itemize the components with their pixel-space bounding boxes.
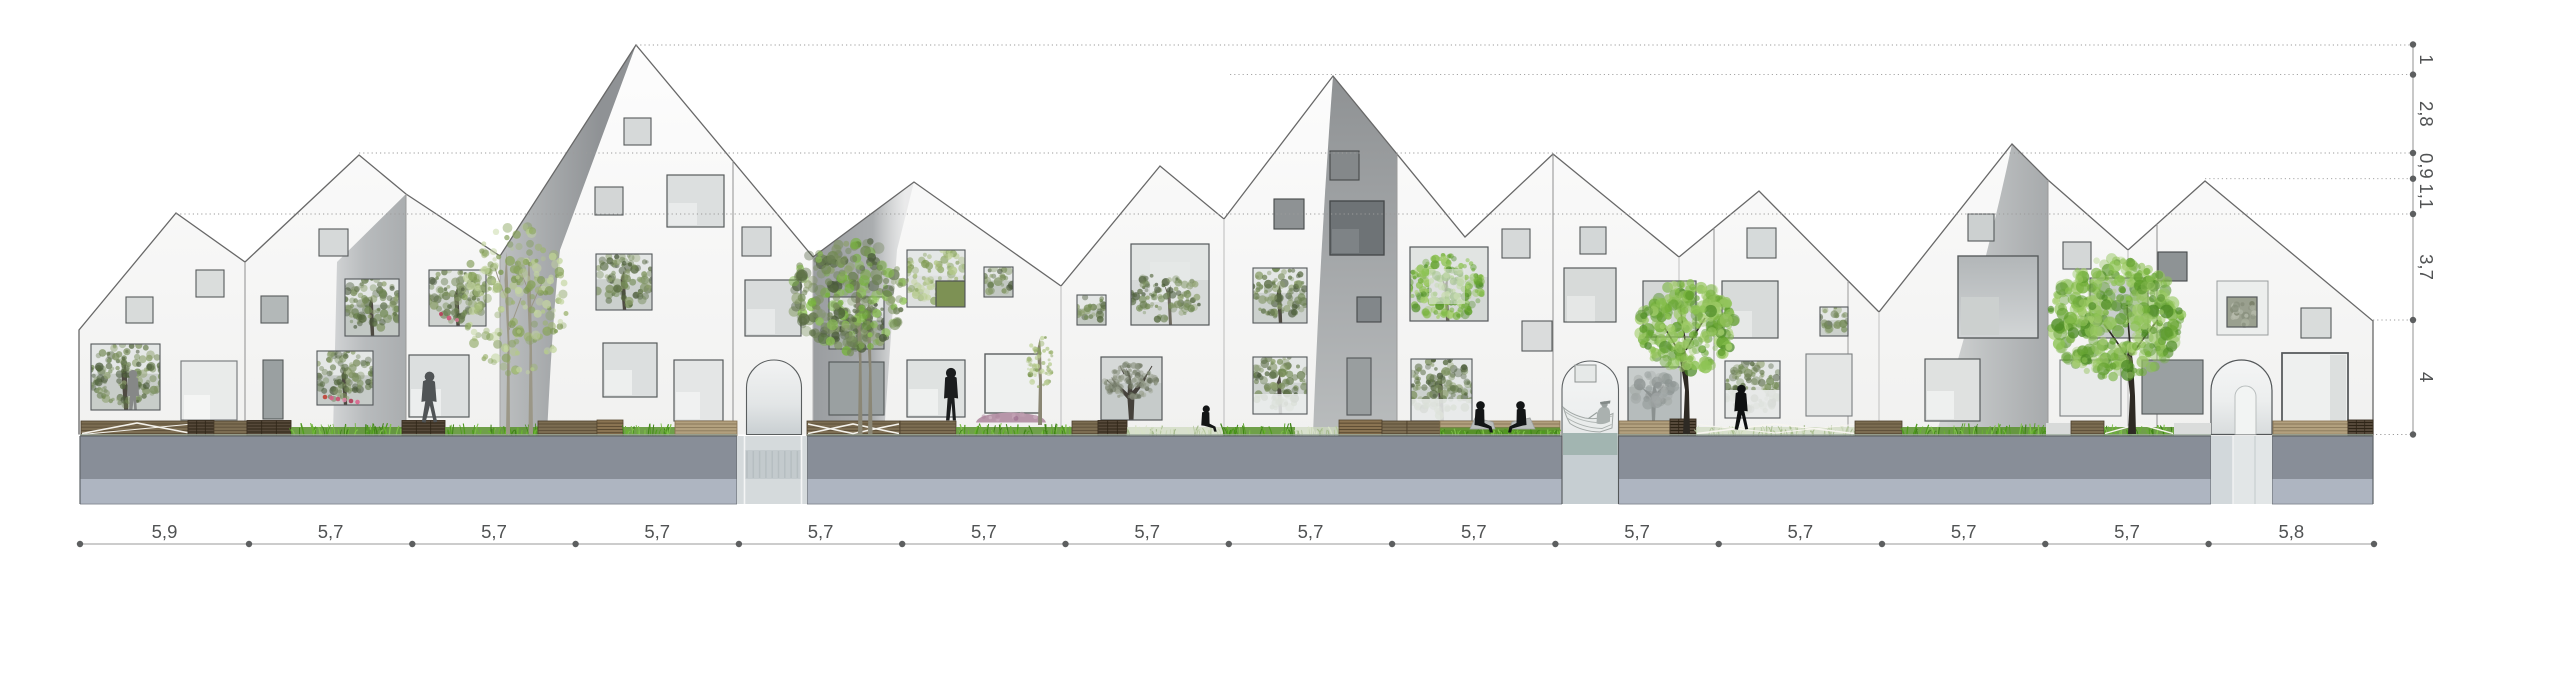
svg-text:5,7: 5,7 — [971, 521, 997, 542]
svg-text:5,7: 5,7 — [1298, 521, 1324, 542]
svg-text:2,8: 2,8 — [2416, 101, 2437, 127]
svg-text:5,9: 5,9 — [152, 521, 178, 542]
svg-text:5,7: 5,7 — [1787, 521, 1813, 542]
svg-text:5,7: 5,7 — [481, 521, 507, 542]
svg-text:5,7: 5,7 — [808, 521, 834, 542]
svg-text:5,7: 5,7 — [2114, 521, 2140, 542]
svg-text:5,8: 5,8 — [2278, 521, 2304, 542]
svg-text:5,7: 5,7 — [1951, 521, 1977, 542]
svg-text:5,7: 5,7 — [1624, 521, 1650, 542]
svg-text:5,7: 5,7 — [1461, 521, 1487, 542]
svg-text:5,7: 5,7 — [1134, 521, 1160, 542]
svg-text:5,7: 5,7 — [318, 521, 344, 542]
svg-text:0,9: 0,9 — [2416, 153, 2437, 179]
svg-text:1: 1 — [2416, 54, 2437, 64]
svg-text:3,7: 3,7 — [2416, 254, 2437, 280]
svg-text:5,7: 5,7 — [644, 521, 670, 542]
svg-text:4: 4 — [2416, 372, 2437, 382]
svg-text:1,1: 1,1 — [2416, 183, 2437, 209]
